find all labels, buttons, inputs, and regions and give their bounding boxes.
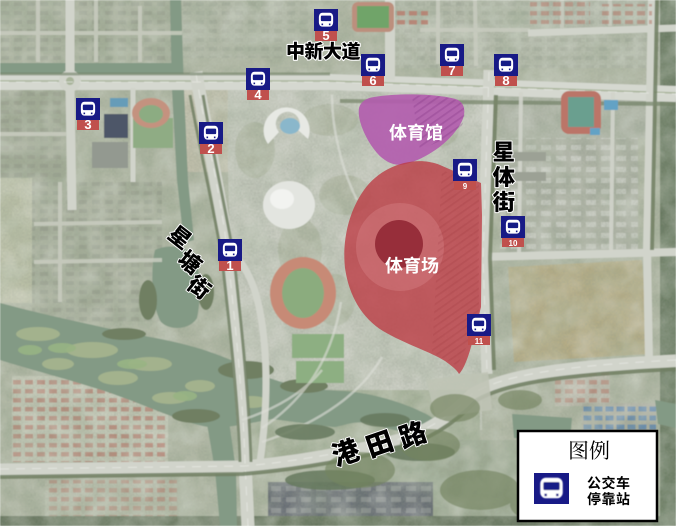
svg-text:6: 6 — [369, 73, 376, 88]
svg-text:10: 10 — [509, 239, 518, 248]
svg-text:11: 11 — [475, 337, 484, 346]
svg-text:7: 7 — [448, 63, 455, 78]
svg-text:9: 9 — [463, 182, 468, 191]
svg-text:4: 4 — [254, 87, 262, 102]
svg-text:3: 3 — [84, 117, 91, 132]
svg-text:5: 5 — [322, 28, 329, 43]
svg-text:2: 2 — [207, 141, 214, 156]
svg-text:8: 8 — [502, 73, 509, 88]
svg-text:1: 1 — [226, 258, 233, 273]
